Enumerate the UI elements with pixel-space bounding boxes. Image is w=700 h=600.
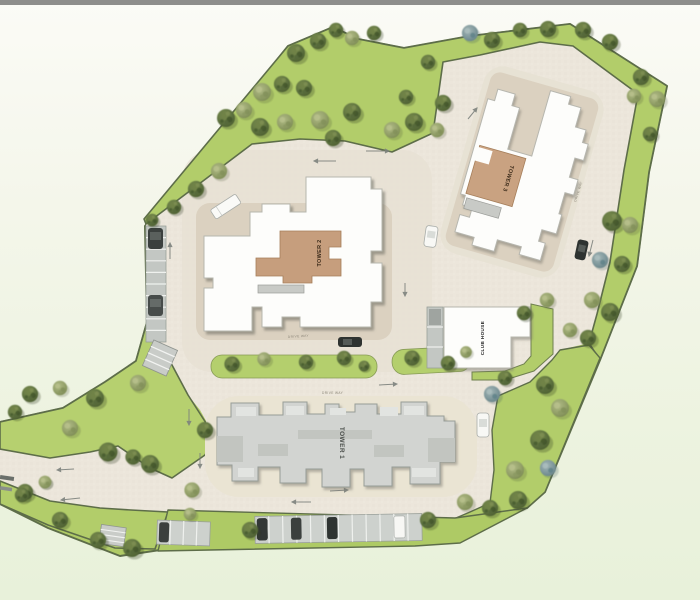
svg-text:TOWER 2: TOWER 2 xyxy=(317,239,323,266)
svg-text:CLUB HOUSE: CLUB HOUSE xyxy=(480,321,485,355)
svg-text:DRIVE WAY: DRIVE WAY xyxy=(322,391,344,395)
svg-text:TOWER 1: TOWER 1 xyxy=(338,427,345,459)
